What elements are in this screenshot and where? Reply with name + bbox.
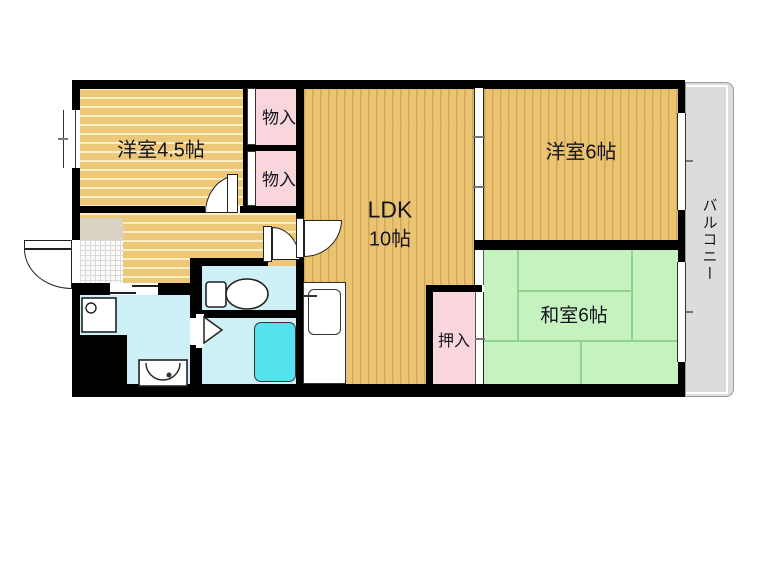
ldk-door-leaf [296, 218, 304, 258]
wall-right [678, 80, 685, 113]
window-western6 [677, 113, 686, 210]
toilet-icon [204, 276, 270, 312]
tatami-line [631, 250, 633, 340]
window-washitsu [677, 262, 686, 362]
wall-oshiire-north [426, 285, 482, 292]
closet-upper-sliding-door [247, 88, 256, 145]
wall-hall-ldk [296, 88, 304, 218]
washitsu-entry-sliding-door [474, 250, 484, 285]
partition-tick [473, 186, 485, 188]
window-tick [686, 160, 693, 162]
wall-left [72, 80, 80, 110]
closet-lower-sliding-door [247, 151, 256, 206]
wall-washroom-east [190, 345, 202, 385]
room-label-ldk-size: 10帖 [369, 223, 411, 252]
wall-western45-south [72, 206, 205, 213]
entrance-door-leaf [24, 240, 72, 249]
room-label-western6: 洋室6帖 [545, 136, 616, 165]
western45-door-leaf [227, 174, 238, 213]
wall-washroom-north [72, 283, 110, 295]
wall-washitsu-north [474, 240, 685, 250]
bathroom-folding-door-icon [196, 314, 226, 348]
wall-toilet-north [300, 258, 304, 266]
window-tick [58, 138, 68, 140]
floor-plan: 洋室4.5帖 物入 物入 LDK 10帖 洋室6帖 和室6帖 押入 バルコニー [0, 0, 775, 571]
wall-right [678, 362, 685, 384]
balcony-label: バルコニー [699, 198, 720, 283]
wall-top [72, 80, 685, 89]
room-label-washitsu: 和室6帖 [540, 301, 608, 328]
room-label-ldk: LDK [368, 197, 413, 224]
closet-lower-label: 物入 [262, 166, 296, 191]
partition-tick [473, 136, 485, 138]
wall-western45-south [240, 206, 304, 213]
closet-upper-label: 物入 [262, 104, 296, 129]
tatami-line [517, 250, 519, 340]
washroom-door-line [110, 292, 136, 294]
genkan-tile [80, 240, 123, 286]
partition-ldk-western6 [474, 88, 484, 240]
wall-left [72, 168, 80, 240]
oshiire-door-tick [475, 338, 485, 340]
window-tick [686, 311, 693, 313]
wall-washroom-north [158, 283, 196, 295]
bathtub-icon [254, 322, 296, 382]
wall-corner-block [72, 335, 127, 385]
tatami-line [517, 290, 631, 292]
genkan-step [80, 218, 123, 240]
room-label-western45: 洋室4.5帖 [117, 134, 205, 163]
wall-oshiire-west [426, 285, 433, 384]
tatami-line [580, 340, 582, 384]
oshiire-label: 押入 [438, 327, 470, 351]
washroom-door-line [132, 285, 158, 287]
washing-machine-icon [80, 296, 118, 334]
bathroom-sink-icon [138, 359, 188, 387]
entrance-door-arc [24, 249, 72, 289]
toilet-door-leaf [263, 226, 272, 262]
kitchen-faucet-icon [303, 295, 317, 297]
wall-right [678, 210, 685, 262]
